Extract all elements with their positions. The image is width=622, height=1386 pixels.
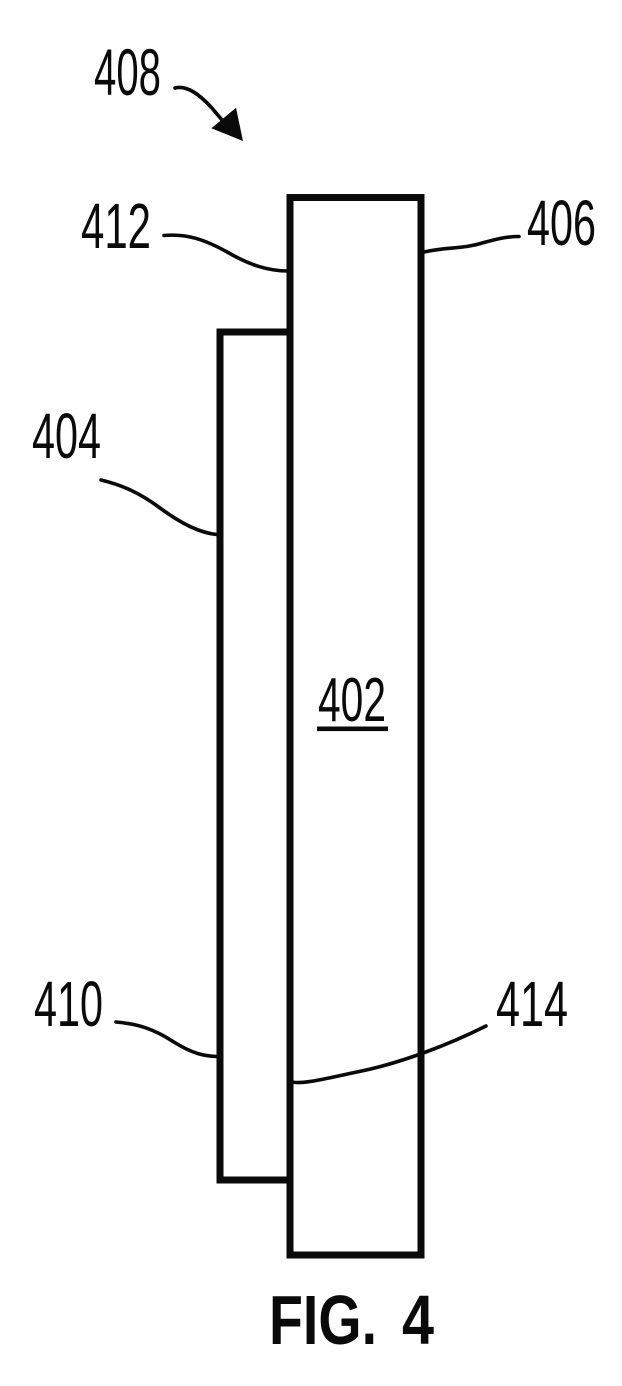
svg-text:406: 406 <box>527 187 596 259</box>
svg-text:412: 412 <box>81 190 151 262</box>
svg-text:414: 414 <box>496 968 568 1040</box>
svg-text:402: 402 <box>318 666 386 735</box>
svg-text:408: 408 <box>94 35 161 109</box>
svg-text:410: 410 <box>34 968 103 1040</box>
svg-text:404: 404 <box>32 400 101 472</box>
svg-text:FIG.: FIG. <box>269 1281 377 1359</box>
svg-text:4: 4 <box>402 1281 434 1359</box>
